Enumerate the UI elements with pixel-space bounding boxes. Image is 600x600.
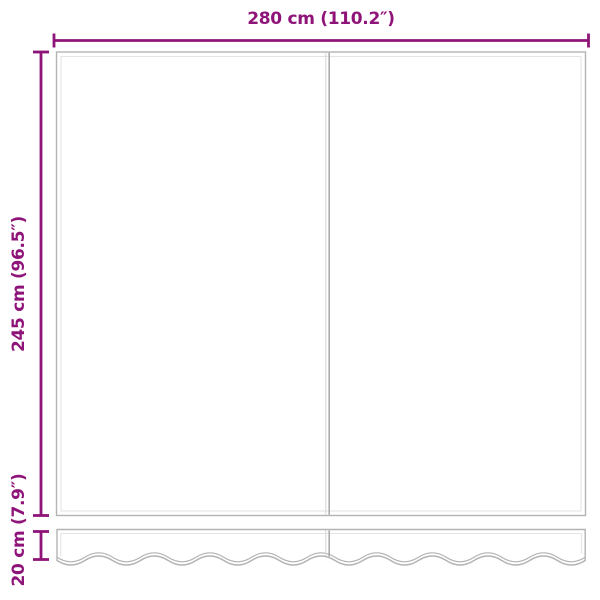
width-dimension-label: 280 cm (110.2″) <box>54 9 588 29</box>
valance-dimension <box>33 532 49 560</box>
width-dimension <box>54 34 589 48</box>
height-dimension-label: 245 cm (96.5″) <box>9 216 29 352</box>
dimension-diagram: 280 cm (110.2″) 245 cm (96.5″) 20 cm (7.… <box>0 0 600 600</box>
valance-dimension-label: 20 cm (7.9″) <box>9 474 29 587</box>
diagram-canvas <box>0 0 600 600</box>
fabric-panel <box>57 52 586 516</box>
height-dimension <box>33 52 49 516</box>
